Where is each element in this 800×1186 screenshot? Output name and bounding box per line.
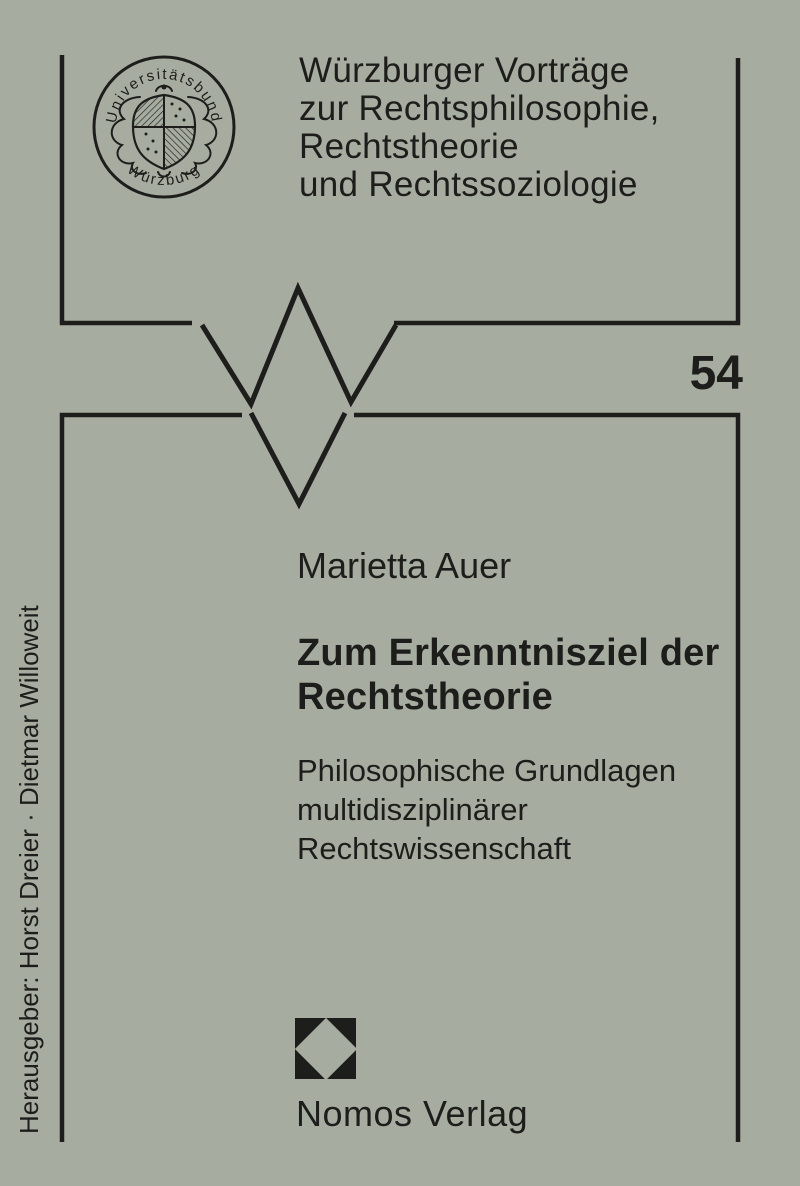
book-cover: Universitätsbund Würzburg — [0, 0, 800, 1186]
series-w-logo-icon — [202, 288, 396, 504]
book-title-line: Rechtstheorie — [297, 675, 720, 719]
author-name: Marietta Auer — [297, 546, 511, 586]
book-title: Zum Erkenntnisziel der Rechtstheorie — [297, 631, 720, 719]
volume-number: 54 — [690, 350, 743, 398]
book-subtitle: Philosophische Grundlagen multidisziplin… — [297, 751, 676, 868]
book-subtitle-line: Philosophische Grundlagen — [297, 751, 676, 790]
series-title: Würzburger Vorträge zur Rechtsphilosophi… — [299, 52, 660, 204]
university-seal: Universitätsbund Würzburg — [94, 57, 234, 197]
series-title-line: Rechtstheorie — [299, 128, 660, 166]
nomos-diamond-logo-icon — [295, 1018, 356, 1079]
book-subtitle-line: multidisziplinärer — [297, 790, 676, 829]
publisher-name: Nomos Verlag — [296, 1094, 528, 1134]
frame-lines — [62, 55, 738, 1142]
w-logo-lower-stroke — [251, 413, 345, 504]
frame-bottom-left-bracket — [62, 415, 242, 1142]
series-title-line: und Rechtssoziologie — [299, 166, 660, 204]
nomos-diamond-shape — [295, 1018, 356, 1079]
series-title-line: Würzburger Vorträge — [299, 52, 660, 90]
book-title-line: Zum Erkenntnisziel der — [297, 631, 720, 675]
w-logo-upper-stroke — [202, 288, 396, 404]
editors-line: Herausgeber: Horst Dreier · Dietmar Will… — [13, 605, 46, 1134]
series-title-line: zur Rechtsphilosophie, — [299, 90, 660, 128]
book-subtitle-line: Rechtswissenschaft — [297, 829, 676, 868]
